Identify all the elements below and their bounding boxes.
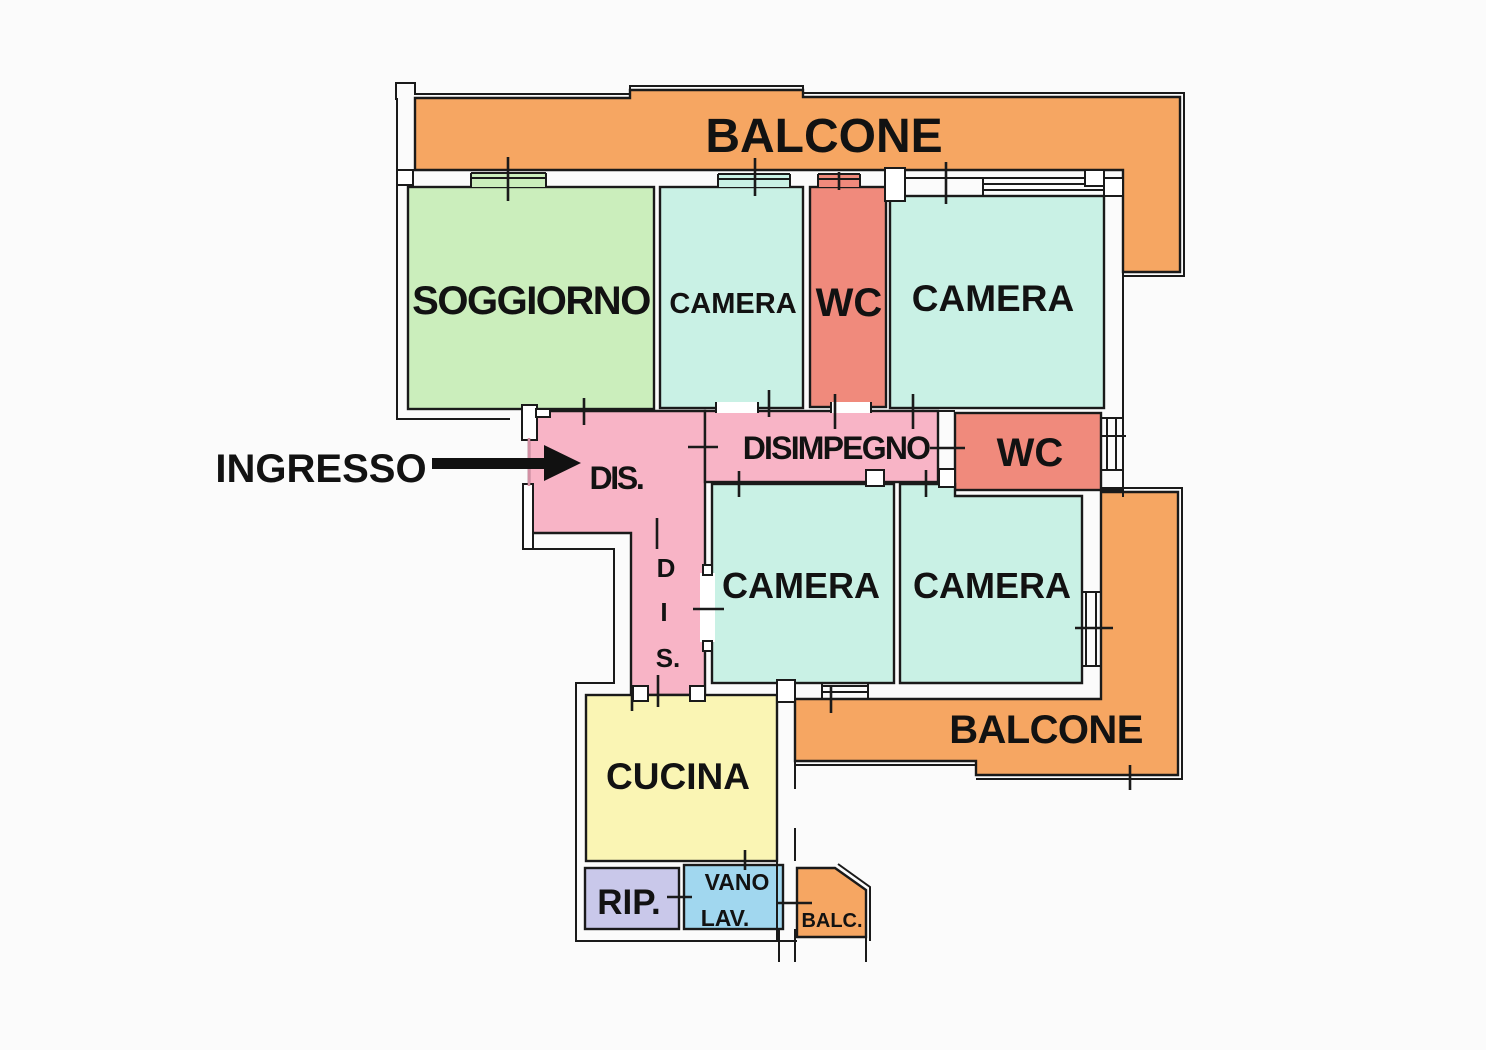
svg-text:VANO: VANO	[705, 869, 770, 895]
svg-text:INGRESSO: INGRESSO	[215, 447, 426, 491]
svg-text:WC: WC	[816, 281, 883, 325]
svg-text:LAV.: LAV.	[701, 905, 750, 931]
svg-text:S.: S.	[656, 643, 681, 673]
svg-text:BALCONE: BALCONE	[949, 708, 1143, 752]
svg-text:WC: WC	[997, 431, 1064, 475]
svg-text:RIP.: RIP.	[597, 883, 661, 922]
svg-text:DIS.: DIS.	[589, 460, 642, 496]
svg-text:BALC.: BALC.	[801, 910, 862, 932]
svg-text:I: I	[660, 597, 667, 627]
svg-text:DISIMPEGNO: DISIMPEGNO	[743, 430, 930, 466]
svg-text:CAMERA: CAMERA	[912, 278, 1074, 319]
svg-text:D: D	[657, 553, 676, 583]
svg-text:CAMERA: CAMERA	[722, 565, 880, 606]
svg-text:CUCINA: CUCINA	[606, 756, 750, 797]
svg-text:BALCONE: BALCONE	[705, 110, 942, 163]
svg-text:CAMERA: CAMERA	[913, 565, 1071, 606]
svg-text:CAMERA: CAMERA	[669, 288, 796, 320]
svg-text:SOGGIORNO: SOGGIORNO	[412, 279, 650, 323]
